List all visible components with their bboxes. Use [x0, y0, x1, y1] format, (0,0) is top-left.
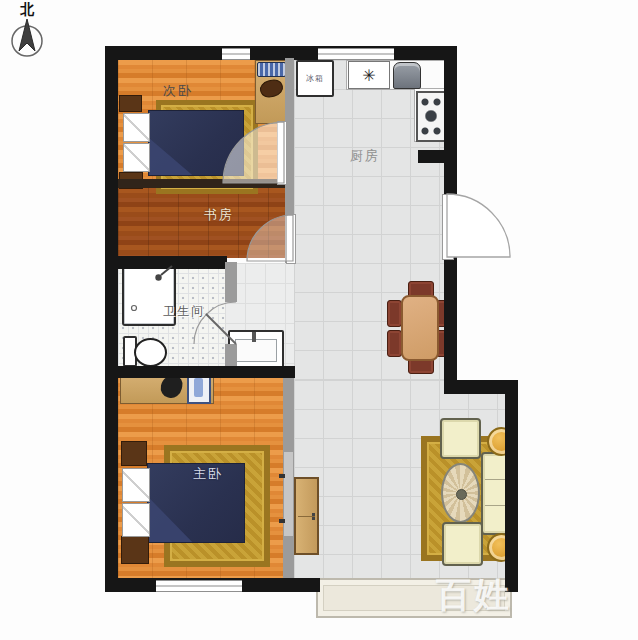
sliding-door-handle	[279, 474, 285, 478]
room-label-kitchen: 厨房	[330, 147, 400, 165]
sink-unit: ✳	[348, 61, 390, 89]
room-label-master-bedroom: 主卧	[178, 465, 238, 483]
entrance-door-leaf	[442, 194, 454, 260]
window-kitchen	[318, 48, 394, 60]
secondary-bedroom-door-leaf	[277, 121, 287, 185]
shoe-cabinet	[294, 477, 319, 555]
window-master-bedroom	[156, 580, 242, 592]
wall-left	[105, 46, 118, 592]
north-arrow-icon	[4, 16, 50, 62]
entrance-door-arc	[447, 194, 510, 257]
kitchen-appliance	[393, 62, 421, 89]
wall-bathroom-bottom	[105, 366, 295, 378]
room-label-study: 书房	[189, 206, 249, 224]
hob-symbol-icon: ✳	[362, 66, 375, 85]
bed	[148, 110, 244, 176]
wall-right-upper	[444, 46, 457, 196]
pillow	[123, 113, 150, 142]
coffee-table	[441, 463, 480, 523]
wall-bathroom-right-upper	[225, 262, 237, 302]
armchair	[442, 522, 483, 566]
study-door-leaf	[286, 214, 296, 264]
dining-chair	[387, 300, 402, 327]
toilet-bowl	[134, 338, 167, 367]
master-sliding-door	[284, 452, 293, 536]
fridge: 冰箱	[296, 60, 334, 97]
armchair	[440, 418, 481, 459]
washbasin-bowl	[235, 339, 277, 362]
nightstand	[121, 441, 147, 466]
wall-right-lower	[505, 380, 518, 592]
compass: 北	[4, 2, 50, 66]
north-label: 北	[4, 2, 50, 16]
wall-bedroom-study	[118, 179, 285, 188]
faucet-icon	[252, 332, 256, 342]
room-label-bathroom: 卫生间	[144, 303, 224, 320]
pillow	[122, 503, 150, 537]
wall-bathroom-right-lower	[225, 344, 237, 366]
pillow	[122, 468, 150, 502]
gas-stove	[416, 91, 447, 142]
wall-top	[105, 46, 457, 60]
nightstand	[119, 95, 142, 112]
pillow	[123, 143, 150, 172]
computer	[257, 62, 286, 77]
nightstand	[121, 536, 149, 564]
wall-stub-kitchen	[418, 150, 444, 163]
room-label-secondary-bedroom: 次卧	[148, 82, 208, 100]
sliding-door-handle	[279, 519, 285, 523]
wall-bathroom-top	[105, 256, 227, 269]
dining-table	[401, 295, 439, 361]
fridge-label: 冰箱	[298, 62, 332, 95]
watermark: 百姓	[436, 572, 512, 619]
wall-right-mid	[444, 256, 457, 394]
window-top-small	[222, 48, 250, 60]
dining-chair	[387, 330, 402, 357]
floorplan-canvas: 北 次卧 书	[0, 0, 638, 640]
